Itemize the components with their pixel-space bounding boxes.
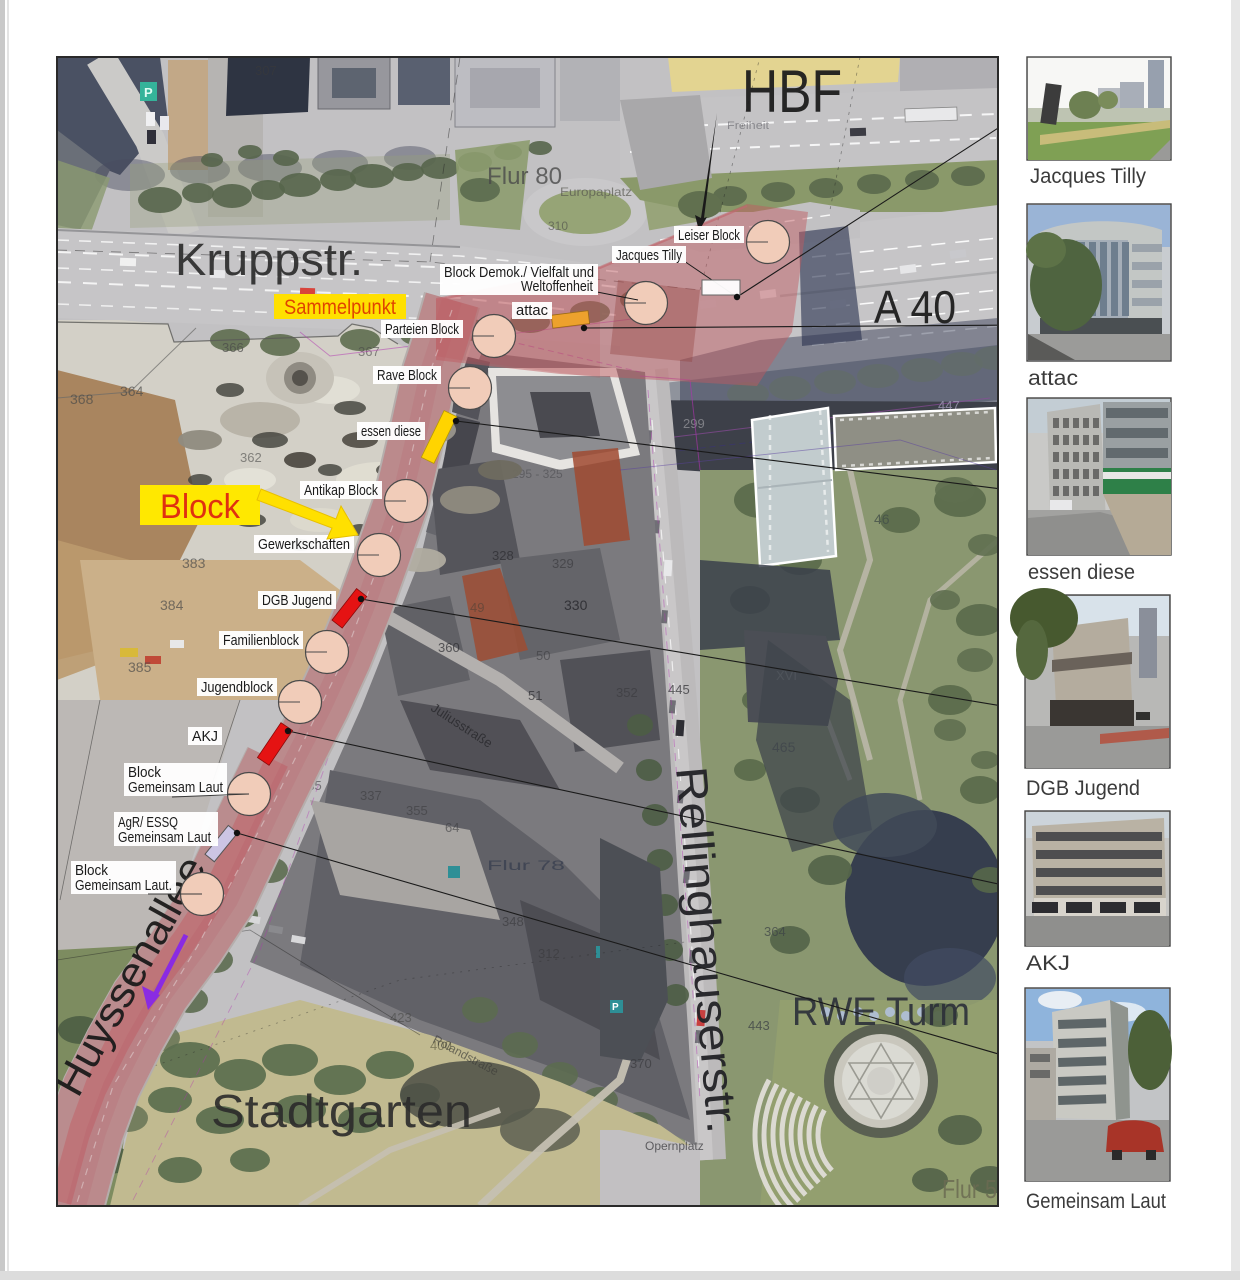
- svg-text:330: 330: [564, 597, 588, 613]
- svg-text:Stadtgarten: Stadtgarten: [211, 1085, 472, 1137]
- svg-text:Gemeinsam Laut: Gemeinsam Laut: [118, 829, 212, 846]
- svg-text:362: 362: [240, 450, 262, 465]
- svg-text:383: 383: [182, 555, 206, 571]
- svg-text:Antikap Block: Antikap Block: [304, 482, 378, 499]
- svg-text:51: 51: [528, 688, 542, 703]
- svg-text:essen diese: essen diese: [361, 423, 421, 440]
- svg-text:P: P: [612, 1002, 619, 1013]
- svg-text:348: 348: [502, 914, 524, 929]
- svg-text:329: 329: [552, 556, 574, 571]
- svg-text:384: 384: [160, 597, 184, 613]
- svg-text:Europaplatz: Europaplatz: [560, 185, 632, 199]
- svg-text:Sammelpunkt: Sammelpunkt: [284, 296, 396, 319]
- svg-text:Familienblock: Familienblock: [223, 632, 299, 649]
- svg-text:366: 366: [222, 340, 244, 355]
- svg-text:Rave Block: Rave Block: [377, 367, 437, 384]
- svg-text:Gemeinsam Laut: Gemeinsam Laut: [1026, 1190, 1166, 1213]
- svg-text:355: 355: [406, 803, 428, 818]
- svg-text:attac: attac: [516, 302, 548, 319]
- svg-text:Jugendblock: Jugendblock: [201, 679, 273, 696]
- svg-text:Opernplatz: Opernplatz: [645, 1139, 704, 1153]
- svg-text:46: 46: [874, 511, 890, 527]
- svg-text:50: 50: [536, 648, 550, 663]
- svg-text:Flur 78: Flur 78: [487, 857, 565, 873]
- svg-text:Flur 5: Flur 5: [942, 1174, 997, 1204]
- svg-text:P: P: [144, 85, 153, 100]
- svg-text:HBF: HBF: [742, 58, 842, 125]
- svg-text:370: 370: [630, 1056, 652, 1071]
- svg-text:Weltoffenheit: Weltoffenheit: [521, 278, 594, 295]
- svg-text:360: 360: [438, 640, 460, 655]
- svg-text:RWE Turm: RWE Turm: [792, 990, 970, 1034]
- svg-text:AKJ: AKJ: [1026, 952, 1070, 975]
- svg-text:essen diese: essen diese: [1028, 561, 1135, 584]
- svg-text:307: 307: [255, 63, 277, 78]
- svg-text:Jacques Tilly: Jacques Tilly: [1030, 165, 1146, 188]
- svg-text:Block: Block: [160, 488, 241, 526]
- svg-text:49: 49: [470, 600, 484, 615]
- svg-text:328: 328: [492, 548, 514, 563]
- svg-text:64: 64: [445, 820, 459, 835]
- svg-text:352: 352: [616, 685, 638, 700]
- svg-text:DGB Jugend: DGB Jugend: [262, 592, 332, 609]
- svg-text:443: 443: [748, 1018, 770, 1033]
- svg-text:Flur 80: Flur 80: [487, 163, 562, 190]
- svg-text:Gemeinsam Laut: Gemeinsam Laut: [128, 779, 224, 796]
- svg-text:Parteien Block: Parteien Block: [385, 321, 459, 338]
- svg-text:attac: attac: [1028, 367, 1078, 390]
- svg-text:DGB Jugend: DGB Jugend: [1026, 777, 1140, 800]
- svg-text:337: 337: [360, 788, 382, 803]
- svg-text:AKJ: AKJ: [192, 728, 218, 745]
- svg-text:385: 385: [128, 659, 152, 675]
- svg-text:445: 445: [668, 682, 690, 697]
- svg-text:Kruppstr.: Kruppstr.: [175, 234, 363, 285]
- svg-text:310: 310: [548, 219, 568, 233]
- svg-text:Gewerkschaften: Gewerkschaften: [258, 536, 350, 553]
- svg-text:Jacques Tilly: Jacques Tilly: [616, 247, 682, 264]
- svg-text:364: 364: [120, 383, 144, 399]
- svg-text:364: 364: [764, 924, 786, 939]
- svg-text:368: 368: [70, 391, 94, 407]
- svg-text:Leiser Block: Leiser Block: [678, 227, 740, 244]
- svg-text:Gemeinsam Laut.: Gemeinsam Laut.: [75, 877, 172, 894]
